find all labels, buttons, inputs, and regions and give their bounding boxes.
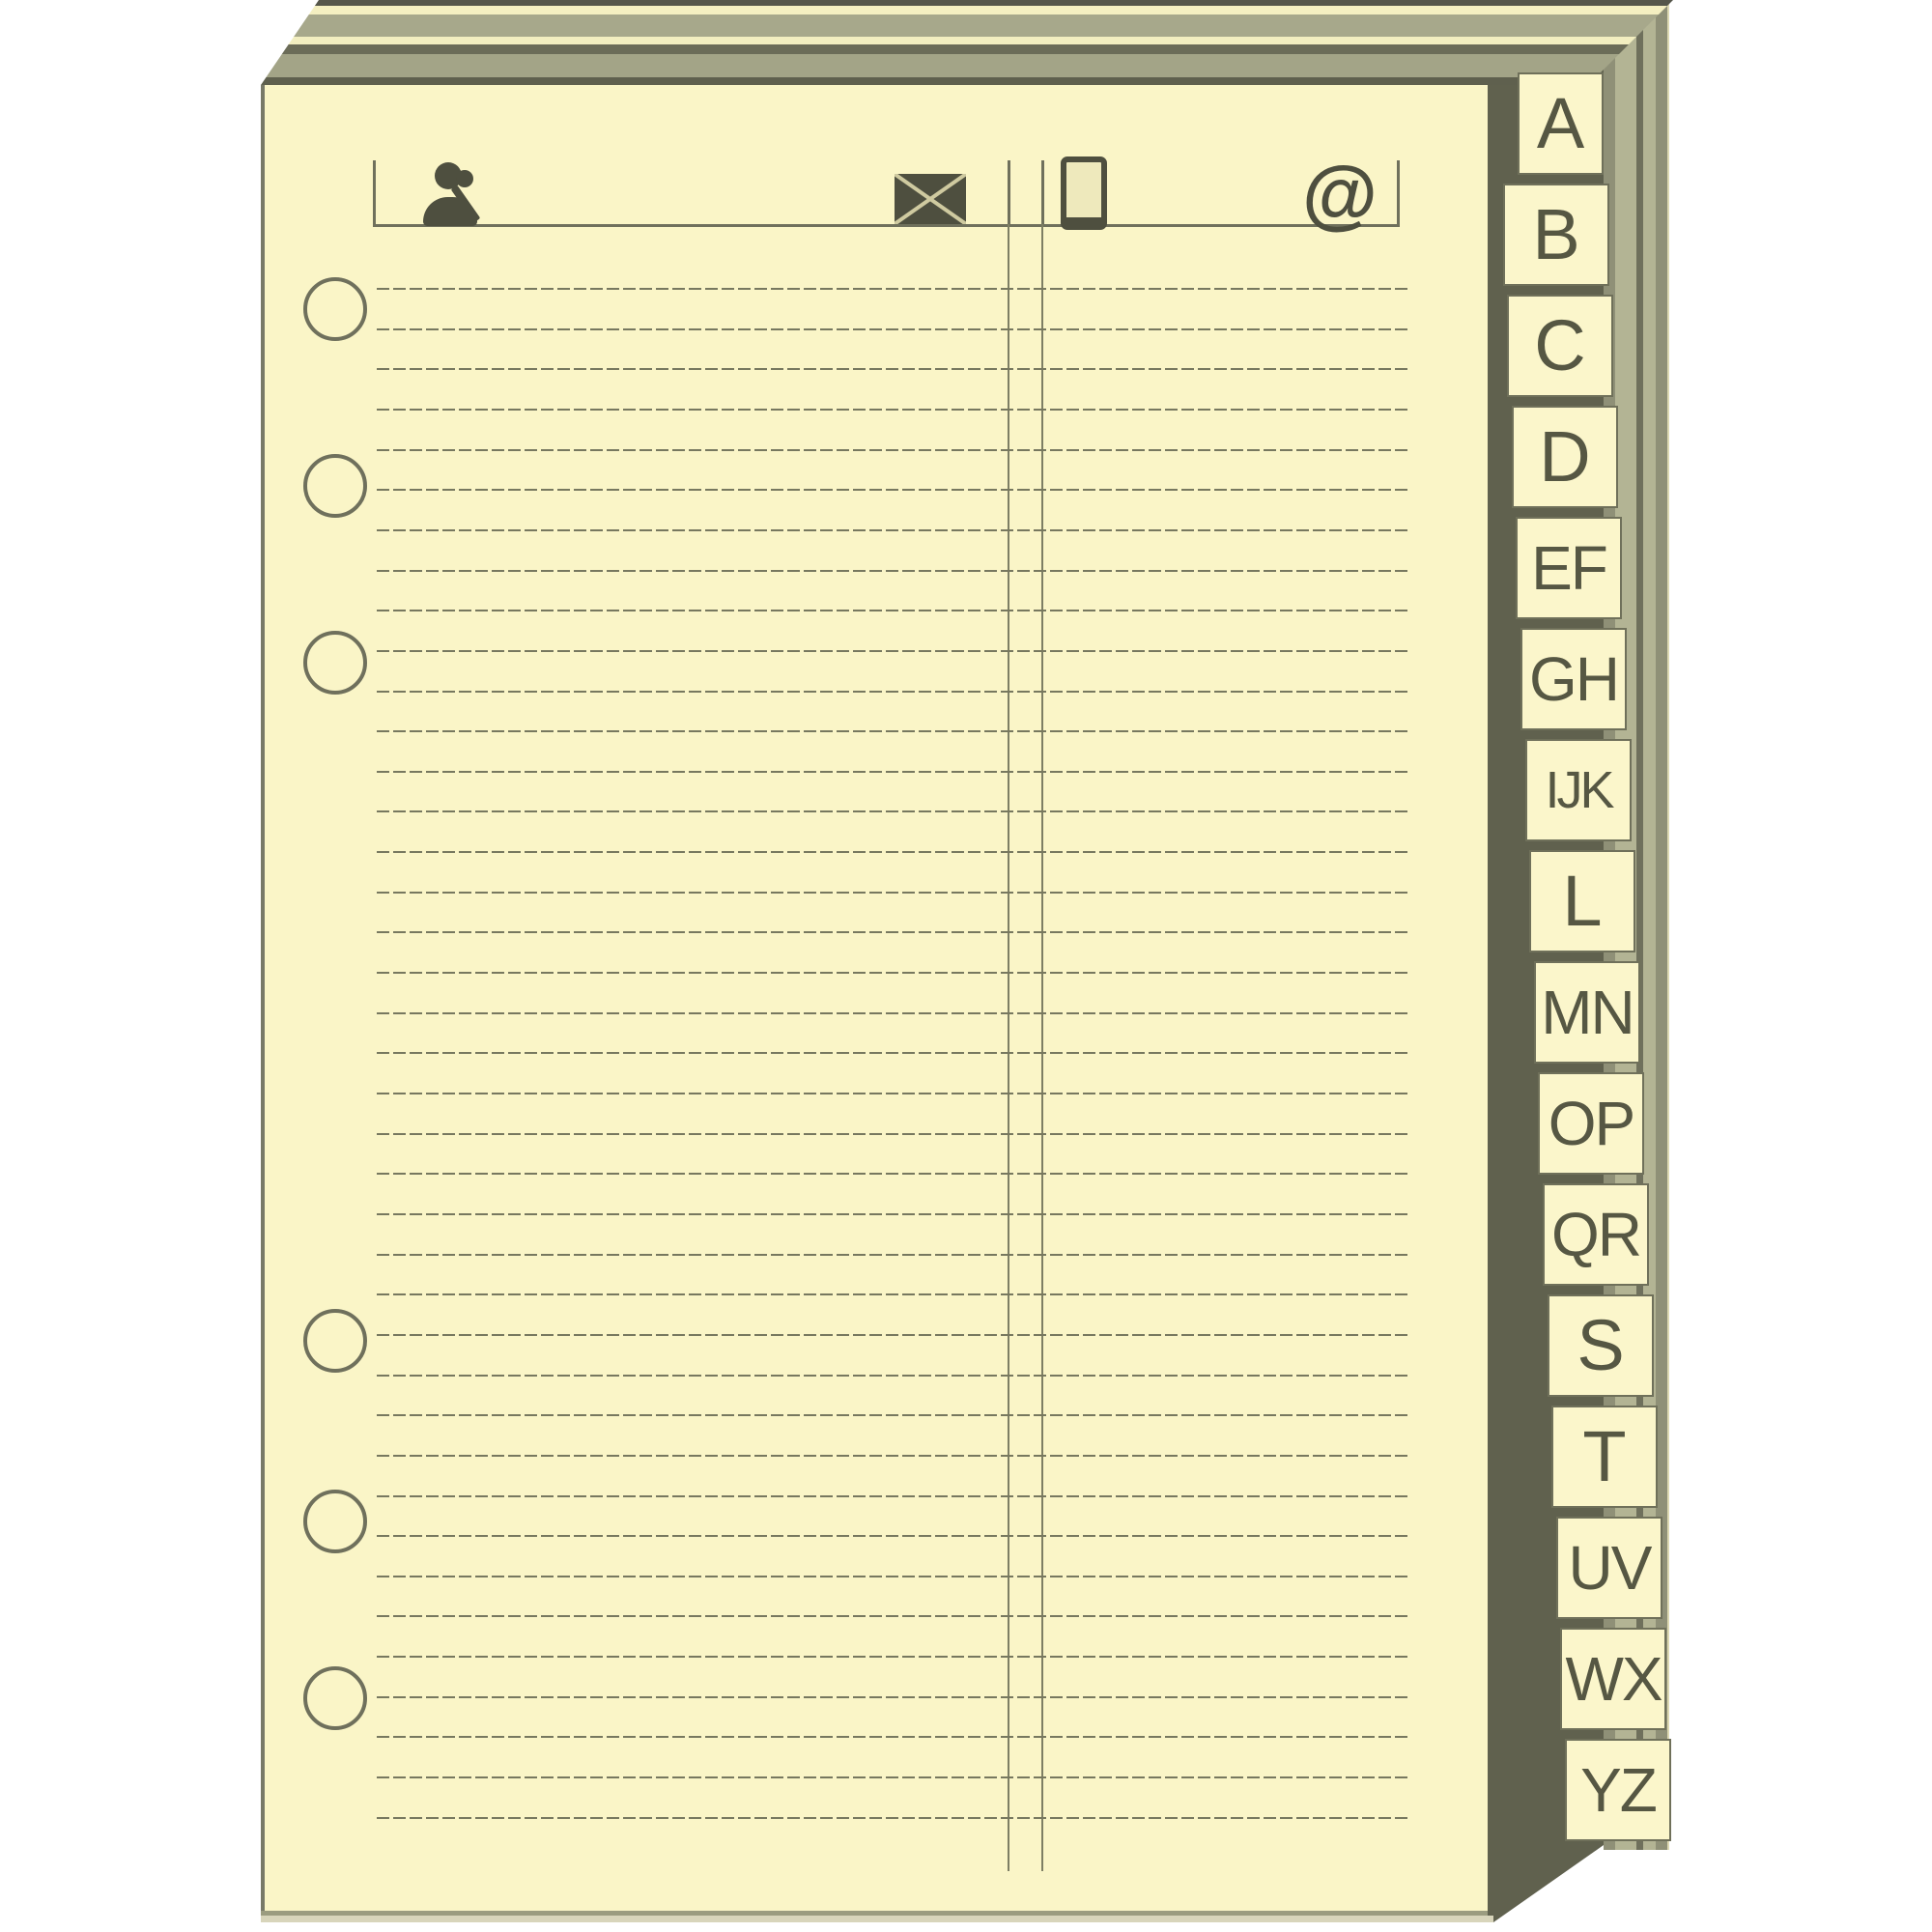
ruled-line [377, 1375, 1409, 1377]
ruled-line [377, 1213, 1409, 1215]
punch-hole [303, 1309, 367, 1373]
ruled-line [377, 1012, 1409, 1014]
punch-hole [303, 454, 367, 518]
punch-hole [303, 631, 367, 695]
punch-hole [303, 277, 367, 341]
ruled-line [377, 368, 1409, 370]
ruled-line [377, 1173, 1409, 1175]
contact-person-icon [423, 162, 481, 226]
ruled-line [377, 288, 1409, 290]
ruled-line [377, 931, 1409, 933]
punch-hole [303, 1490, 367, 1553]
ruled-line [377, 650, 1409, 652]
header-divider-tick-2 [1041, 160, 1044, 226]
address-book-product: @ A B C D EF GH IJK L MN OP QR S T UV WX… [0, 0, 1932, 1932]
ruled-line [377, 489, 1409, 491]
index-tab-d[interactable]: D [1512, 406, 1618, 508]
ruled-line [377, 1495, 1409, 1497]
index-tab-uv[interactable]: UV [1556, 1517, 1662, 1619]
address-page: @ [261, 85, 1488, 1916]
ruled-line [377, 409, 1409, 411]
ruled-line [377, 851, 1409, 853]
ruled-line [377, 972, 1409, 974]
header-right-tick [1397, 160, 1400, 226]
ruled-line [377, 1817, 1409, 1819]
index-tab-t[interactable]: T [1551, 1406, 1658, 1508]
index-tab-op[interactable]: OP [1538, 1072, 1644, 1175]
ruled-line [377, 1776, 1409, 1778]
column-divider-line-2 [1041, 224, 1043, 1871]
ruled-line [377, 810, 1409, 812]
mobile-phone-icon [1061, 156, 1107, 230]
ruled-line [377, 1696, 1409, 1698]
ruled-line [377, 328, 1409, 330]
ruled-line [377, 1615, 1409, 1617]
envelope-icon [895, 174, 966, 224]
ruled-line [377, 1736, 1409, 1738]
ruled-line [377, 1535, 1409, 1537]
index-tab-wx[interactable]: WX [1560, 1628, 1666, 1730]
header-underline [373, 224, 1400, 227]
punch-hole [303, 1666, 367, 1730]
ruled-line [377, 570, 1409, 572]
index-tab-gh[interactable]: GH [1520, 628, 1627, 730]
column-divider-line-1 [1008, 224, 1009, 1871]
ruled-line [377, 1133, 1409, 1135]
ruled-line [377, 1093, 1409, 1094]
index-tab-b[interactable]: B [1503, 184, 1609, 286]
person-shoulder [456, 170, 473, 187]
ruled-line [377, 1334, 1409, 1336]
ruled-line [377, 1052, 1409, 1054]
ruled-line [377, 1254, 1409, 1256]
page-bottom-edge [261, 1911, 1488, 1916]
ruled-line [377, 610, 1409, 611]
header-left-tick [373, 160, 376, 226]
index-tab-c[interactable]: C [1507, 295, 1613, 397]
ruled-line [377, 529, 1409, 531]
ruled-line [377, 1656, 1409, 1658]
index-tab-ijk[interactable]: IJK [1525, 739, 1632, 841]
ruled-line [377, 1576, 1409, 1577]
at-sign-icon: @ [1302, 162, 1376, 228]
index-tab-ef[interactable]: EF [1516, 517, 1622, 619]
page-stack-top-edge [261, 0, 1673, 85]
ruled-line [377, 892, 1409, 894]
ruled-line [377, 730, 1409, 732]
index-tab-yz[interactable]: YZ [1565, 1739, 1671, 1841]
ruled-line [377, 1455, 1409, 1457]
page-bottom-shadow [261, 1916, 1493, 1922]
header-divider-tick-1 [1008, 160, 1010, 226]
ruled-line [377, 449, 1409, 451]
index-tab-mn[interactable]: MN [1534, 961, 1640, 1064]
page-left-edge [261, 85, 265, 1916]
ruled-line [377, 691, 1409, 693]
index-tab-s[interactable]: S [1548, 1294, 1654, 1397]
ruled-line [377, 1414, 1409, 1416]
index-tab-l[interactable]: L [1529, 850, 1635, 952]
ruled-line [377, 771, 1409, 773]
ruled-line [377, 1293, 1409, 1295]
index-tab-qr[interactable]: QR [1543, 1183, 1649, 1286]
index-tab-a[interactable]: A [1518, 72, 1604, 175]
